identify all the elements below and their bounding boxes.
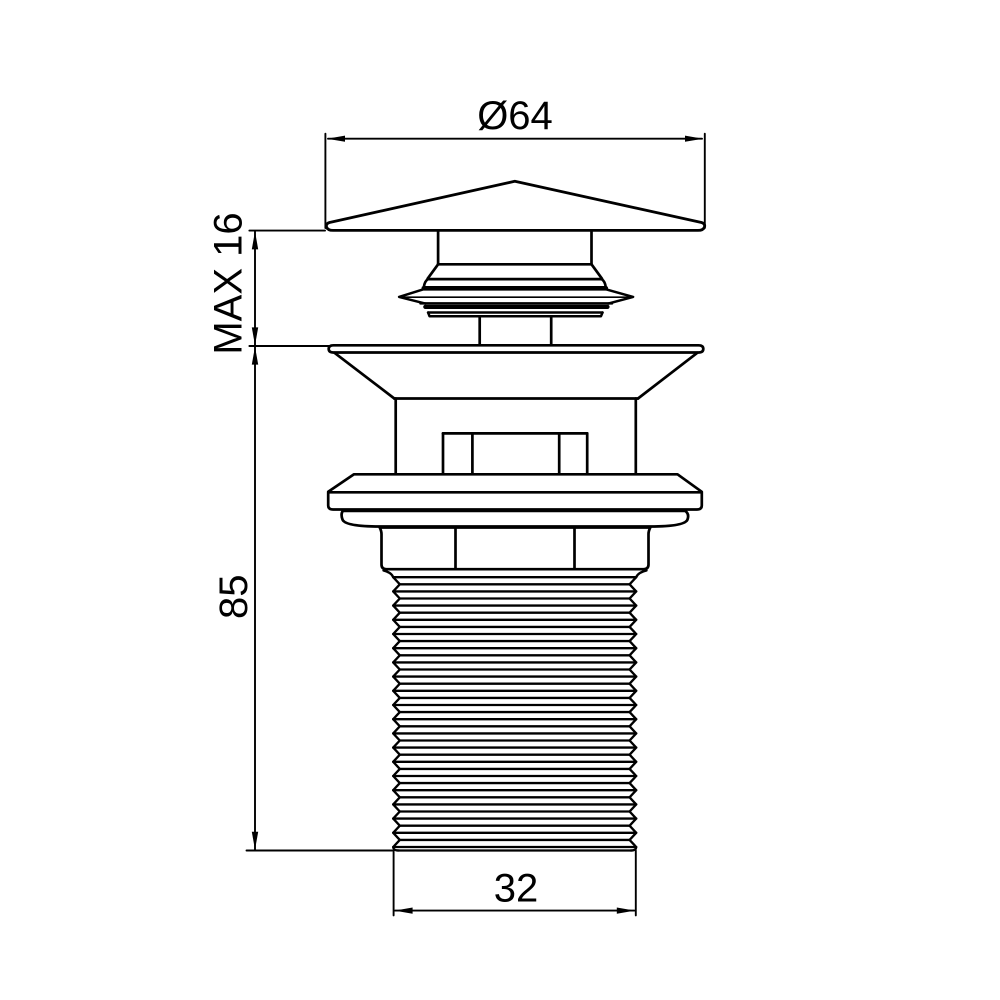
svg-text:Ø64: Ø64 xyxy=(477,94,553,138)
svg-text:85: 85 xyxy=(212,574,256,619)
svg-text:32: 32 xyxy=(494,867,539,911)
svg-text:MAX 16: MAX 16 xyxy=(206,212,250,354)
